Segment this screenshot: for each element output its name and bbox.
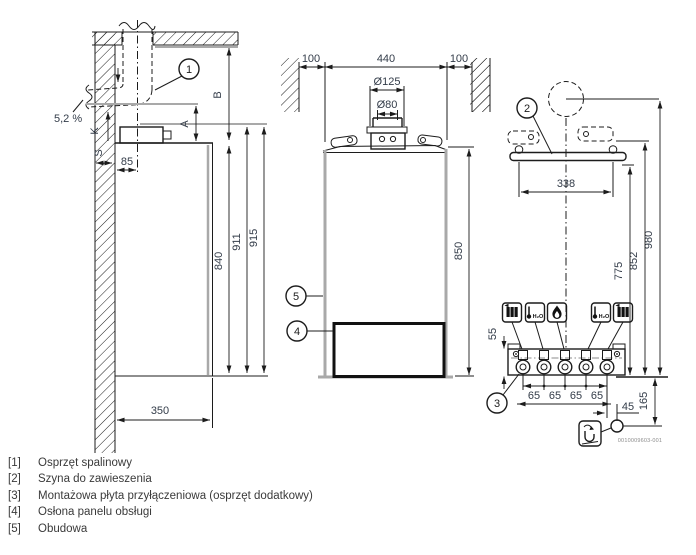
legend-item-3: [3] Montażowa płyta przyłączeniowa (ospr… <box>8 488 648 504</box>
legend: [1] Osprzęt spalinowy [2] Szyna do zawie… <box>8 455 648 537</box>
connection-plate <box>508 344 625 375</box>
svg-text:H₂O: H₂O <box>599 314 610 320</box>
legend-item-5: [5] Obudowa <box>8 521 648 537</box>
dim-840: 840 <box>213 252 225 270</box>
legend-item-2: [2] Szyna do zawieszenia <box>8 471 648 487</box>
flue-stub <box>367 118 407 149</box>
dim-85: 85 <box>121 156 133 168</box>
dim-slope: 5,2 % <box>54 113 82 125</box>
legend-index: [5] <box>8 521 38 537</box>
dim-65-4: 65 <box>591 390 603 402</box>
dim-165: 165 <box>638 392 650 410</box>
ceiling-hatch <box>153 32 238 45</box>
dim-80: Ø80 <box>377 99 398 111</box>
wall-hatch <box>470 58 490 112</box>
svg-text:H₂O: H₂O <box>533 314 544 320</box>
wall-hatch <box>281 58 299 112</box>
dim-338: 338 <box>557 178 575 190</box>
dim-915: 915 <box>248 229 260 247</box>
gas-icon <box>548 303 567 322</box>
dim-440: 440 <box>377 53 395 65</box>
legend-label: Montażowa płyta przyłączeniowa (osprzęt … <box>38 488 313 504</box>
legend-index: [1] <box>8 455 38 471</box>
dim-775: 775 <box>613 262 625 280</box>
legend-label: Osłona panelu obsługi <box>38 504 152 520</box>
hot-water-icon: H₂O <box>526 303 545 322</box>
legend-item-4: [4] Osłona panelu obsługi <box>8 504 648 520</box>
rear-view: 2 338 980 852 775 <box>470 58 668 446</box>
dim-65-1: 65 <box>528 390 540 402</box>
callout-5-label: 5 <box>293 291 299 303</box>
dim-k: K <box>89 127 101 135</box>
drawing-number: 0010009603-001 <box>618 438 662 444</box>
installation-drawing-page: 1 5,2 % K S 85 A B 840 911 915 350 1 <box>0 0 696 555</box>
callout-4-label: 4 <box>294 326 300 338</box>
dim-a: A <box>179 120 191 128</box>
legend-item-1: [1] Osprzęt spalinowy <box>8 455 648 471</box>
dim-350: 350 <box>151 405 169 417</box>
callout-3-label: 3 <box>494 398 500 410</box>
dim-100-left: 100 <box>302 53 320 65</box>
connection-icons: H₂O H₂O <box>503 303 633 349</box>
side-view: 1 5,2 % K S 85 A B 840 911 915 350 <box>54 20 268 453</box>
boiler-front <box>318 135 453 377</box>
dim-45: 45 <box>622 401 634 413</box>
dim-b: B <box>212 91 224 98</box>
legend-index: [3] <box>8 488 38 504</box>
control-panel-cover <box>334 324 444 377</box>
pipe-connections <box>516 351 614 374</box>
dim-65-3: 65 <box>570 390 582 402</box>
wall-hatch <box>95 32 115 453</box>
callout-2-label: 2 <box>524 103 530 115</box>
legend-label: Obudowa <box>38 521 87 537</box>
dim-65-2: 65 <box>549 390 561 402</box>
dim-100-right: 100 <box>450 53 468 65</box>
cold-water-icon: H₂O <box>592 303 611 322</box>
legend-label: Osprzęt spalinowy <box>38 455 132 471</box>
dim-55: 55 <box>487 328 499 340</box>
condensate-drain-point <box>611 420 623 432</box>
dim-850: 850 <box>453 242 465 260</box>
callout-1-label: 1 <box>186 64 192 76</box>
legend-label: Szyna do zawieszenia <box>38 471 152 487</box>
heating-flow-icon <box>503 303 522 322</box>
legend-index: [2] <box>8 471 38 487</box>
front-view: 100 440 100 Ø125 Ø80 <box>281 53 490 377</box>
hanging-rail <box>510 146 626 161</box>
hanging-brackets <box>508 127 613 144</box>
dim-911: 911 <box>231 233 243 251</box>
legend-index: [4] <box>8 504 38 520</box>
drain-icon <box>579 421 601 446</box>
dim-s: S <box>93 149 105 156</box>
dim-125: Ø125 <box>374 76 401 88</box>
